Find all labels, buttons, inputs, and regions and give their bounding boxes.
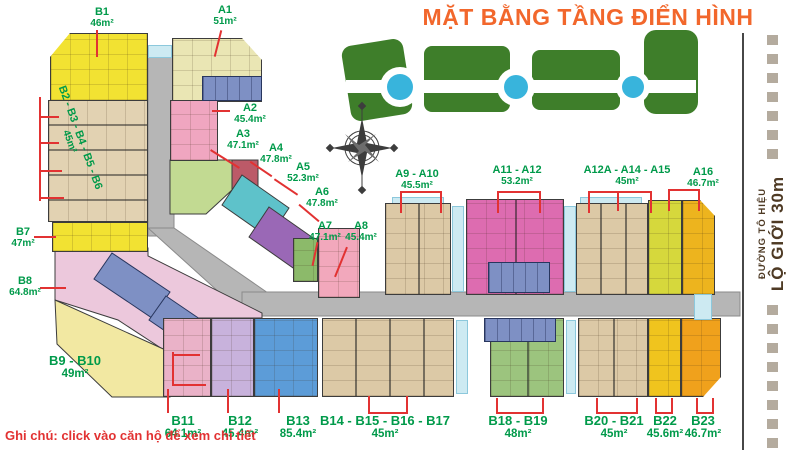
callout-b2b6-stub (39, 170, 62, 172)
sky-well (452, 206, 464, 292)
technical-room (202, 76, 262, 101)
unit-b20-b21[interactable] (578, 318, 648, 397)
label-a1: A151m² (180, 4, 270, 27)
callout-a12a-stub (617, 191, 619, 211)
label-a5: A552.3m² (258, 161, 348, 184)
callout-b11 (167, 389, 169, 413)
callout-b18-b19 (496, 398, 544, 414)
callout-b9b10-stub (172, 384, 206, 386)
stair-core (484, 318, 556, 342)
legend-note: Ghi chú: click vào căn hộ để xem chi tiế… (5, 428, 365, 443)
callout-a16 (668, 189, 700, 211)
callout-b12 (227, 389, 229, 413)
unit-b14-b17[interactable] (322, 318, 454, 397)
elevator-core (488, 262, 550, 293)
callout-a12a-a14-a15 (588, 191, 652, 213)
page-title: MẶT BẰNG TẦNG ĐIỂN HÌNH (408, 4, 768, 31)
callout-b23 (696, 398, 714, 414)
label-b9-b10: B9 - B1049m² (0, 354, 150, 381)
callout-b2b6-line (39, 97, 41, 201)
callout-b20-b21 (596, 398, 638, 414)
label-a8: A845.4m² (316, 220, 406, 243)
callout-a11-a12 (497, 191, 541, 213)
unit-b13[interactable] (254, 318, 318, 397)
label-b23: B2346.7m² (658, 414, 748, 441)
pool-icon (387, 74, 413, 100)
unit-a16[interactable] (682, 200, 715, 295)
callout-b22 (655, 398, 673, 414)
label-a11-a12: A11 - A1253.2m² (472, 164, 562, 187)
sky-well (148, 45, 172, 58)
callout-b2b6-stub (39, 197, 64, 199)
unit-b22[interactable] (648, 318, 681, 397)
label-a9-a10: A9 - A1045.5m² (372, 168, 462, 191)
label-b7: B747m² (0, 226, 68, 249)
label-b8: B864.8m² (0, 275, 70, 298)
label-b18-b19: B18 - B1948m² (473, 414, 563, 441)
callout-b9b10-stub (172, 354, 200, 356)
sky-well (564, 206, 576, 292)
floor-plan-canvas: MẶT BẰNG TẦNG ĐIỂN HÌNH Ghi chú: click v… (0, 0, 800, 450)
label-b1: B146m² (57, 6, 147, 29)
pool-icon (504, 75, 528, 99)
pool-icon (622, 76, 644, 98)
callout-b1 (96, 30, 98, 57)
unit-a9-a10[interactable] (385, 203, 451, 295)
sky-well (456, 320, 468, 394)
landscape-garden (340, 30, 698, 122)
label-a16: A1646.7m² (658, 166, 748, 189)
callout-b2b6-stub (39, 142, 59, 144)
callout-b9b10-line (172, 352, 174, 386)
hedge (644, 30, 698, 114)
unit-b12[interactable] (211, 318, 254, 397)
hedge (424, 46, 510, 112)
label-a6: A647.8m² (277, 186, 367, 209)
label-a2: A245.4m² (205, 102, 295, 125)
callout-b14-b17 (368, 396, 408, 414)
sky-well (566, 320, 576, 394)
unit-a16-left[interactable] (648, 200, 682, 295)
unit-a12a-a14-a15[interactable] (576, 203, 648, 295)
corridor-bridge (694, 294, 712, 320)
callout-a9-a10 (400, 191, 442, 213)
callout-b13 (278, 389, 280, 413)
